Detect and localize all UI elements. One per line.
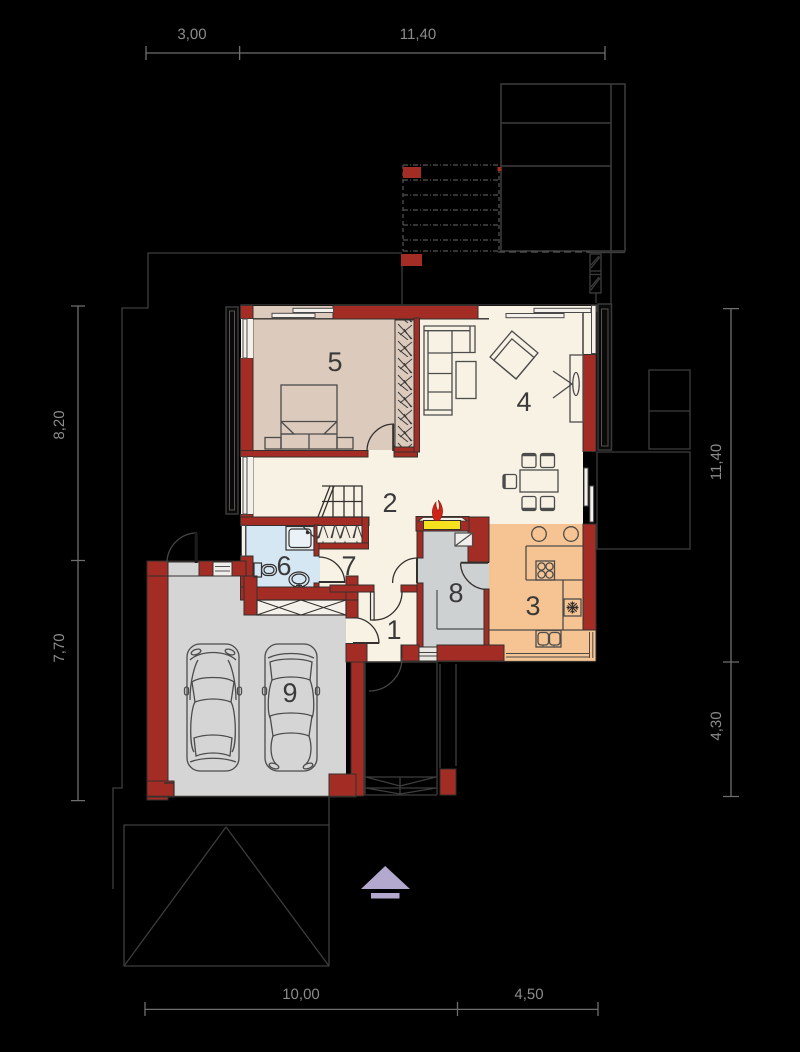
svg-text:8: 8	[448, 578, 463, 608]
svg-text:7: 7	[341, 551, 356, 581]
svg-text:2: 2	[382, 488, 397, 518]
svg-text:9: 9	[282, 678, 297, 708]
svg-text:7,70: 7,70	[51, 633, 68, 662]
svg-text:3: 3	[525, 591, 540, 621]
svg-text:6: 6	[276, 551, 291, 581]
svg-text:11,40: 11,40	[400, 26, 436, 43]
svg-text:11,40: 11,40	[708, 444, 725, 480]
svg-text:8,20: 8,20	[51, 410, 68, 439]
svg-text:4,50: 4,50	[514, 986, 543, 1003]
svg-text:4: 4	[516, 387, 531, 417]
svg-text:10,00: 10,00	[282, 986, 320, 1003]
svg-text:1: 1	[386, 615, 401, 645]
svg-text:5: 5	[327, 347, 342, 377]
svg-text:4,30: 4,30	[708, 711, 725, 740]
svg-text:3,00: 3,00	[177, 26, 206, 43]
